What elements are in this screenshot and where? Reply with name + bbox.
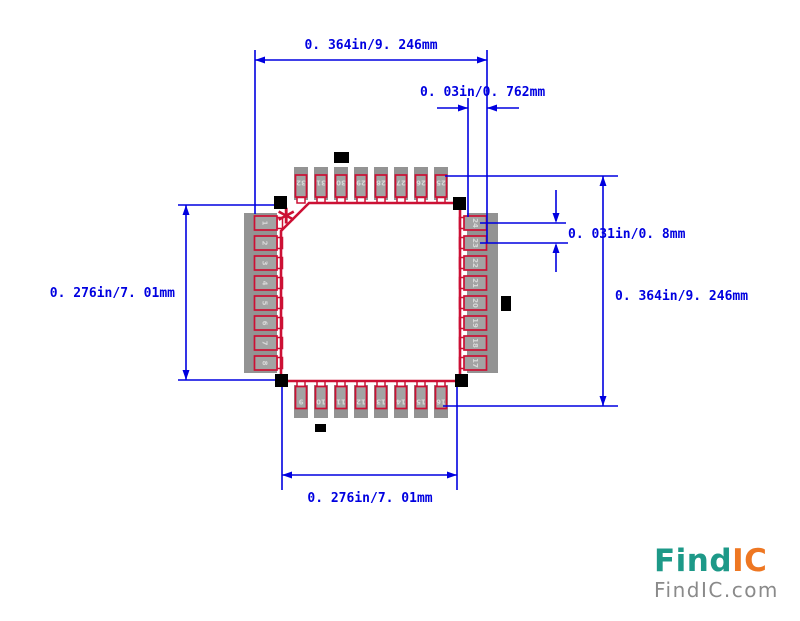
dim-label-left-height: 0. 276in/7. 01mm (50, 286, 175, 301)
pad-number: 9 (298, 398, 303, 406)
dim-label-right-height: 0. 364in/9. 246mm (615, 289, 748, 304)
dim-label-pitch: 0. 031in/0. 8mm (568, 227, 686, 242)
footprint-diagram: 3231302928272625 910111213141516 1234567… (0, 0, 800, 621)
pad-number: 27 (396, 179, 406, 187)
arrowhead (282, 472, 292, 479)
pads-bottom: 910111213141516 (294, 381, 448, 418)
pad-number: 18 (471, 338, 479, 348)
pad-number: 28 (376, 179, 386, 187)
arrowhead (183, 370, 190, 380)
pad-number: 20 (471, 298, 479, 308)
pad-number: 23 (471, 238, 479, 248)
findic-logo[interactable]: FindIC FindIC.com (654, 546, 779, 600)
pad-stub (297, 198, 305, 204)
pads-top: 3231302928272625 (294, 167, 448, 203)
dim-label-bottom-width: 0. 276in/7. 01mm (307, 491, 432, 506)
corner-mark (453, 197, 466, 210)
pad-number: 5 (261, 301, 269, 306)
arrowhead (553, 243, 560, 253)
pad-number: 30 (336, 179, 346, 187)
corner-mark (274, 196, 287, 209)
pad-number: 12 (356, 398, 366, 406)
pad-number: 6 (261, 321, 269, 326)
findic-logo-domain[interactable]: FindIC.com (654, 580, 779, 600)
dim-label-top-width: 0. 364in/9. 246mm (304, 38, 437, 53)
logo-text-ic: IC (732, 543, 767, 579)
arrowhead (255, 57, 265, 64)
pad-number: 1 (261, 221, 269, 226)
arrowhead (553, 213, 560, 223)
pad-number: 25 (436, 179, 446, 187)
arrowhead (183, 205, 190, 215)
pad-number: 14 (396, 398, 406, 406)
package-body-outline (281, 203, 460, 381)
orientation-mark (334, 152, 349, 163)
pad-number: 26 (416, 179, 426, 187)
pad-number: 17 (471, 358, 479, 368)
pad-number: 11 (336, 398, 346, 406)
arrowhead (600, 176, 607, 186)
arrowhead (600, 396, 607, 406)
arrowhead (477, 57, 487, 64)
pad-number: 24 (471, 218, 479, 228)
footprint-page: 3231302928272625 910111213141516 1234567… (0, 0, 800, 621)
pad-number: 32 (296, 179, 306, 187)
findic-logo-wordmark[interactable]: FindIC (654, 546, 779, 577)
dim-label-lead-length: 0. 03in/0. 762mm (420, 85, 545, 100)
orientation-mark (315, 424, 326, 432)
pad-number: 8 (261, 361, 269, 366)
pad-number: 16 (436, 398, 446, 406)
pad-number: 13 (376, 398, 386, 406)
pad-number: 15 (416, 398, 426, 406)
pads-right: 2423222120191817 (460, 213, 499, 373)
pad-number: 19 (471, 318, 479, 328)
pad-number: 31 (316, 179, 326, 187)
pad-number: 22 (471, 258, 479, 268)
corner-mark (275, 374, 288, 387)
pad-number: 7 (261, 341, 269, 346)
pad-number: 3 (261, 261, 269, 266)
logo-text-find: Find (654, 543, 732, 579)
orientation-mark (501, 296, 511, 311)
arrowhead (487, 105, 497, 112)
pad-number: 21 (471, 278, 479, 288)
pad-number: 10 (316, 398, 326, 406)
pad-number: 2 (261, 241, 269, 246)
arrowhead (447, 472, 457, 479)
pad-number: 4 (261, 281, 269, 286)
corner-mark (455, 374, 468, 387)
arrowhead (458, 105, 468, 112)
pad-number: 29 (356, 179, 366, 187)
